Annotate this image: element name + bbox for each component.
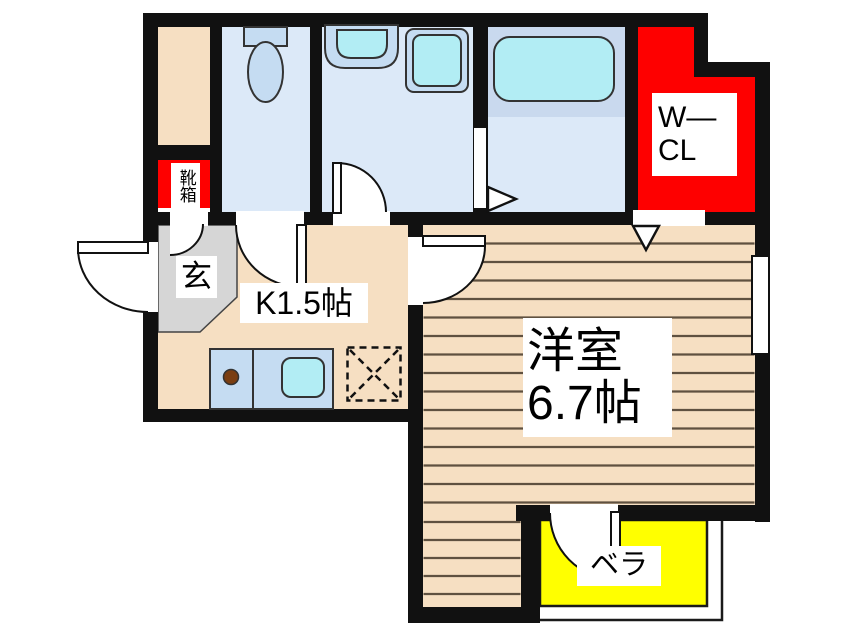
kitchen-sink: [282, 358, 324, 397]
toilet-door-opening: [236, 211, 304, 226]
wall-toilet-left: [210, 13, 222, 225]
washroom-door-leaf: [333, 163, 341, 213]
window-right-wall: [752, 256, 769, 354]
wall-bottom-left: [408, 607, 540, 623]
wall-top: [143, 13, 708, 27]
entry-door-swing: [78, 248, 148, 312]
closet-floor: [158, 27, 210, 145]
walk-in-closet-label: W— CL: [652, 93, 737, 176]
living-door-leaf: [423, 236, 485, 246]
wall-kitchen-bottom: [143, 409, 423, 422]
living-door-opening: [408, 237, 423, 305]
western-room-label: 洋室 6.7帖: [523, 318, 672, 437]
bathtub: [494, 37, 614, 101]
wcl-label-line1: W—: [658, 102, 716, 134]
wcl-label-line2: CL: [658, 135, 696, 167]
entry-door-leaf: [78, 242, 148, 253]
veranda-label: ベラ: [577, 546, 661, 586]
floor-plan: 靴箱 玄 K1.5帖 洋室 6.7帖 W— CL ベラ: [0, 0, 846, 634]
bathroom-door-opening: [474, 128, 486, 208]
toilet-door-leaf: [297, 225, 306, 285]
washer-pan-inner: [413, 35, 461, 86]
wall-veranda-stub: [521, 505, 540, 623]
kitchen-label: K1.5帖: [240, 283, 368, 323]
western-room-size: 6.7帖: [527, 378, 642, 430]
western-room-name: 洋室: [527, 326, 623, 378]
wall-wcl-left: [625, 13, 638, 225]
shoe-box-label: 靴箱: [171, 163, 200, 208]
wcl-opening: [633, 210, 705, 226]
wall-toilet-right: [310, 13, 322, 225]
stove-burner: [224, 370, 239, 385]
toilet-bowl: [248, 42, 283, 102]
shoebox-opening: [170, 211, 208, 226]
entrance-label: 玄: [176, 256, 217, 298]
vanity-basin: [337, 30, 387, 58]
wall-closet-divider: [158, 145, 210, 160]
